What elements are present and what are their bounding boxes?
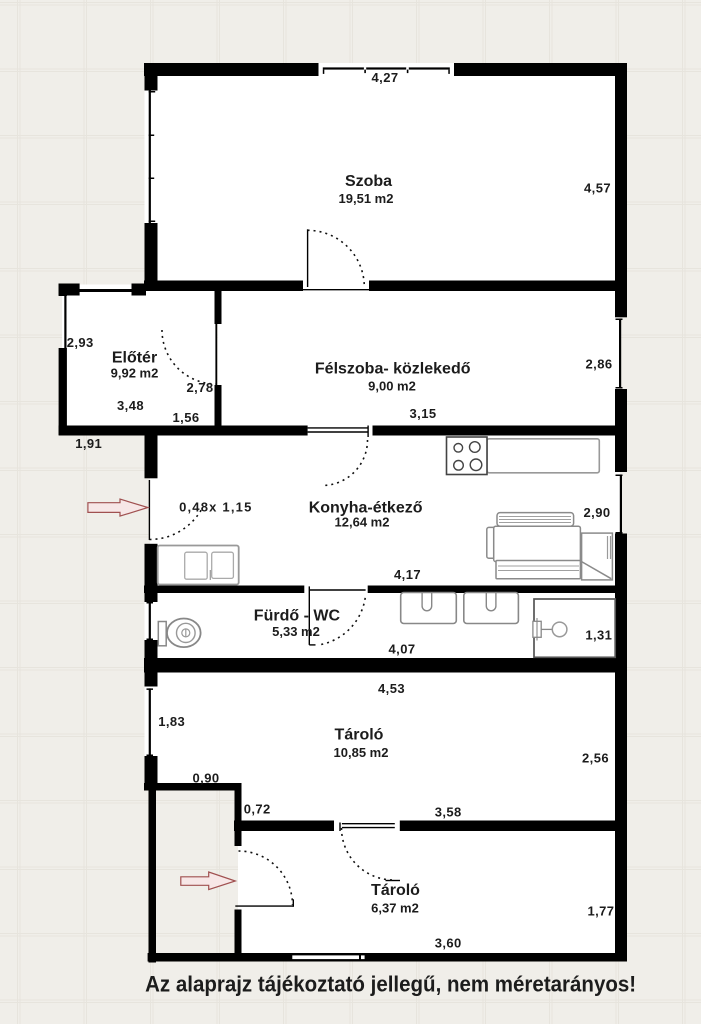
svg-text:12,64 m2: 12,64 m2 [335,514,390,529]
svg-text:4,57: 4,57 [584,180,611,195]
svg-text:1,56: 1,56 [173,410,200,425]
svg-text:Fürdő - WC: Fürdő - WC [254,608,341,625]
svg-text:0,48x 1,15: 0,48x 1,15 [179,500,252,515]
svg-text:3,15: 3,15 [410,406,437,421]
svg-text:0,90: 0,90 [193,770,220,785]
svg-text:3,60: 3,60 [435,935,462,950]
svg-text:4,17: 4,17 [394,567,421,582]
svg-text:2,56: 2,56 [582,751,609,766]
svg-text:Szoba: Szoba [345,173,392,190]
svg-text:1,83: 1,83 [158,714,185,729]
svg-text:1,31: 1,31 [585,627,612,642]
svg-text:Tároló: Tároló [335,727,384,744]
svg-text:2,78: 2,78 [187,380,214,395]
svg-text:1,91: 1,91 [75,436,102,451]
svg-text:9,92 m2: 9,92 m2 [111,366,159,381]
svg-text:6,37 m2: 6,37 m2 [371,901,419,916]
svg-text:3,58: 3,58 [435,804,462,819]
svg-text:9,00 m2: 9,00 m2 [368,379,416,394]
svg-text:2,93: 2,93 [67,335,94,350]
svg-text:Félszoba- közlekedő: Félszoba- közlekedő [315,361,471,378]
svg-text:1,77: 1,77 [587,903,614,918]
svg-text:5,33 m2: 5,33 m2 [272,624,320,639]
svg-text:4,27: 4,27 [372,70,399,85]
svg-text:0,72: 0,72 [244,802,271,817]
svg-text:Tároló: Tároló [371,882,420,899]
svg-text:Előtér: Előtér [112,350,157,367]
svg-text:Az alaprajz tájékoztató jelleg: Az alaprajz tájékoztató jellegű, nem mér… [145,972,636,997]
svg-text:3,48: 3,48 [117,398,144,413]
svg-text:2,90: 2,90 [584,505,611,520]
svg-text:10,85 m2: 10,85 m2 [334,745,389,760]
svg-text:4,53: 4,53 [378,681,405,696]
svg-text:4,07: 4,07 [389,641,416,656]
svg-text:2,86: 2,86 [586,356,613,371]
svg-text:19,51 m2: 19,51 m2 [339,191,394,206]
